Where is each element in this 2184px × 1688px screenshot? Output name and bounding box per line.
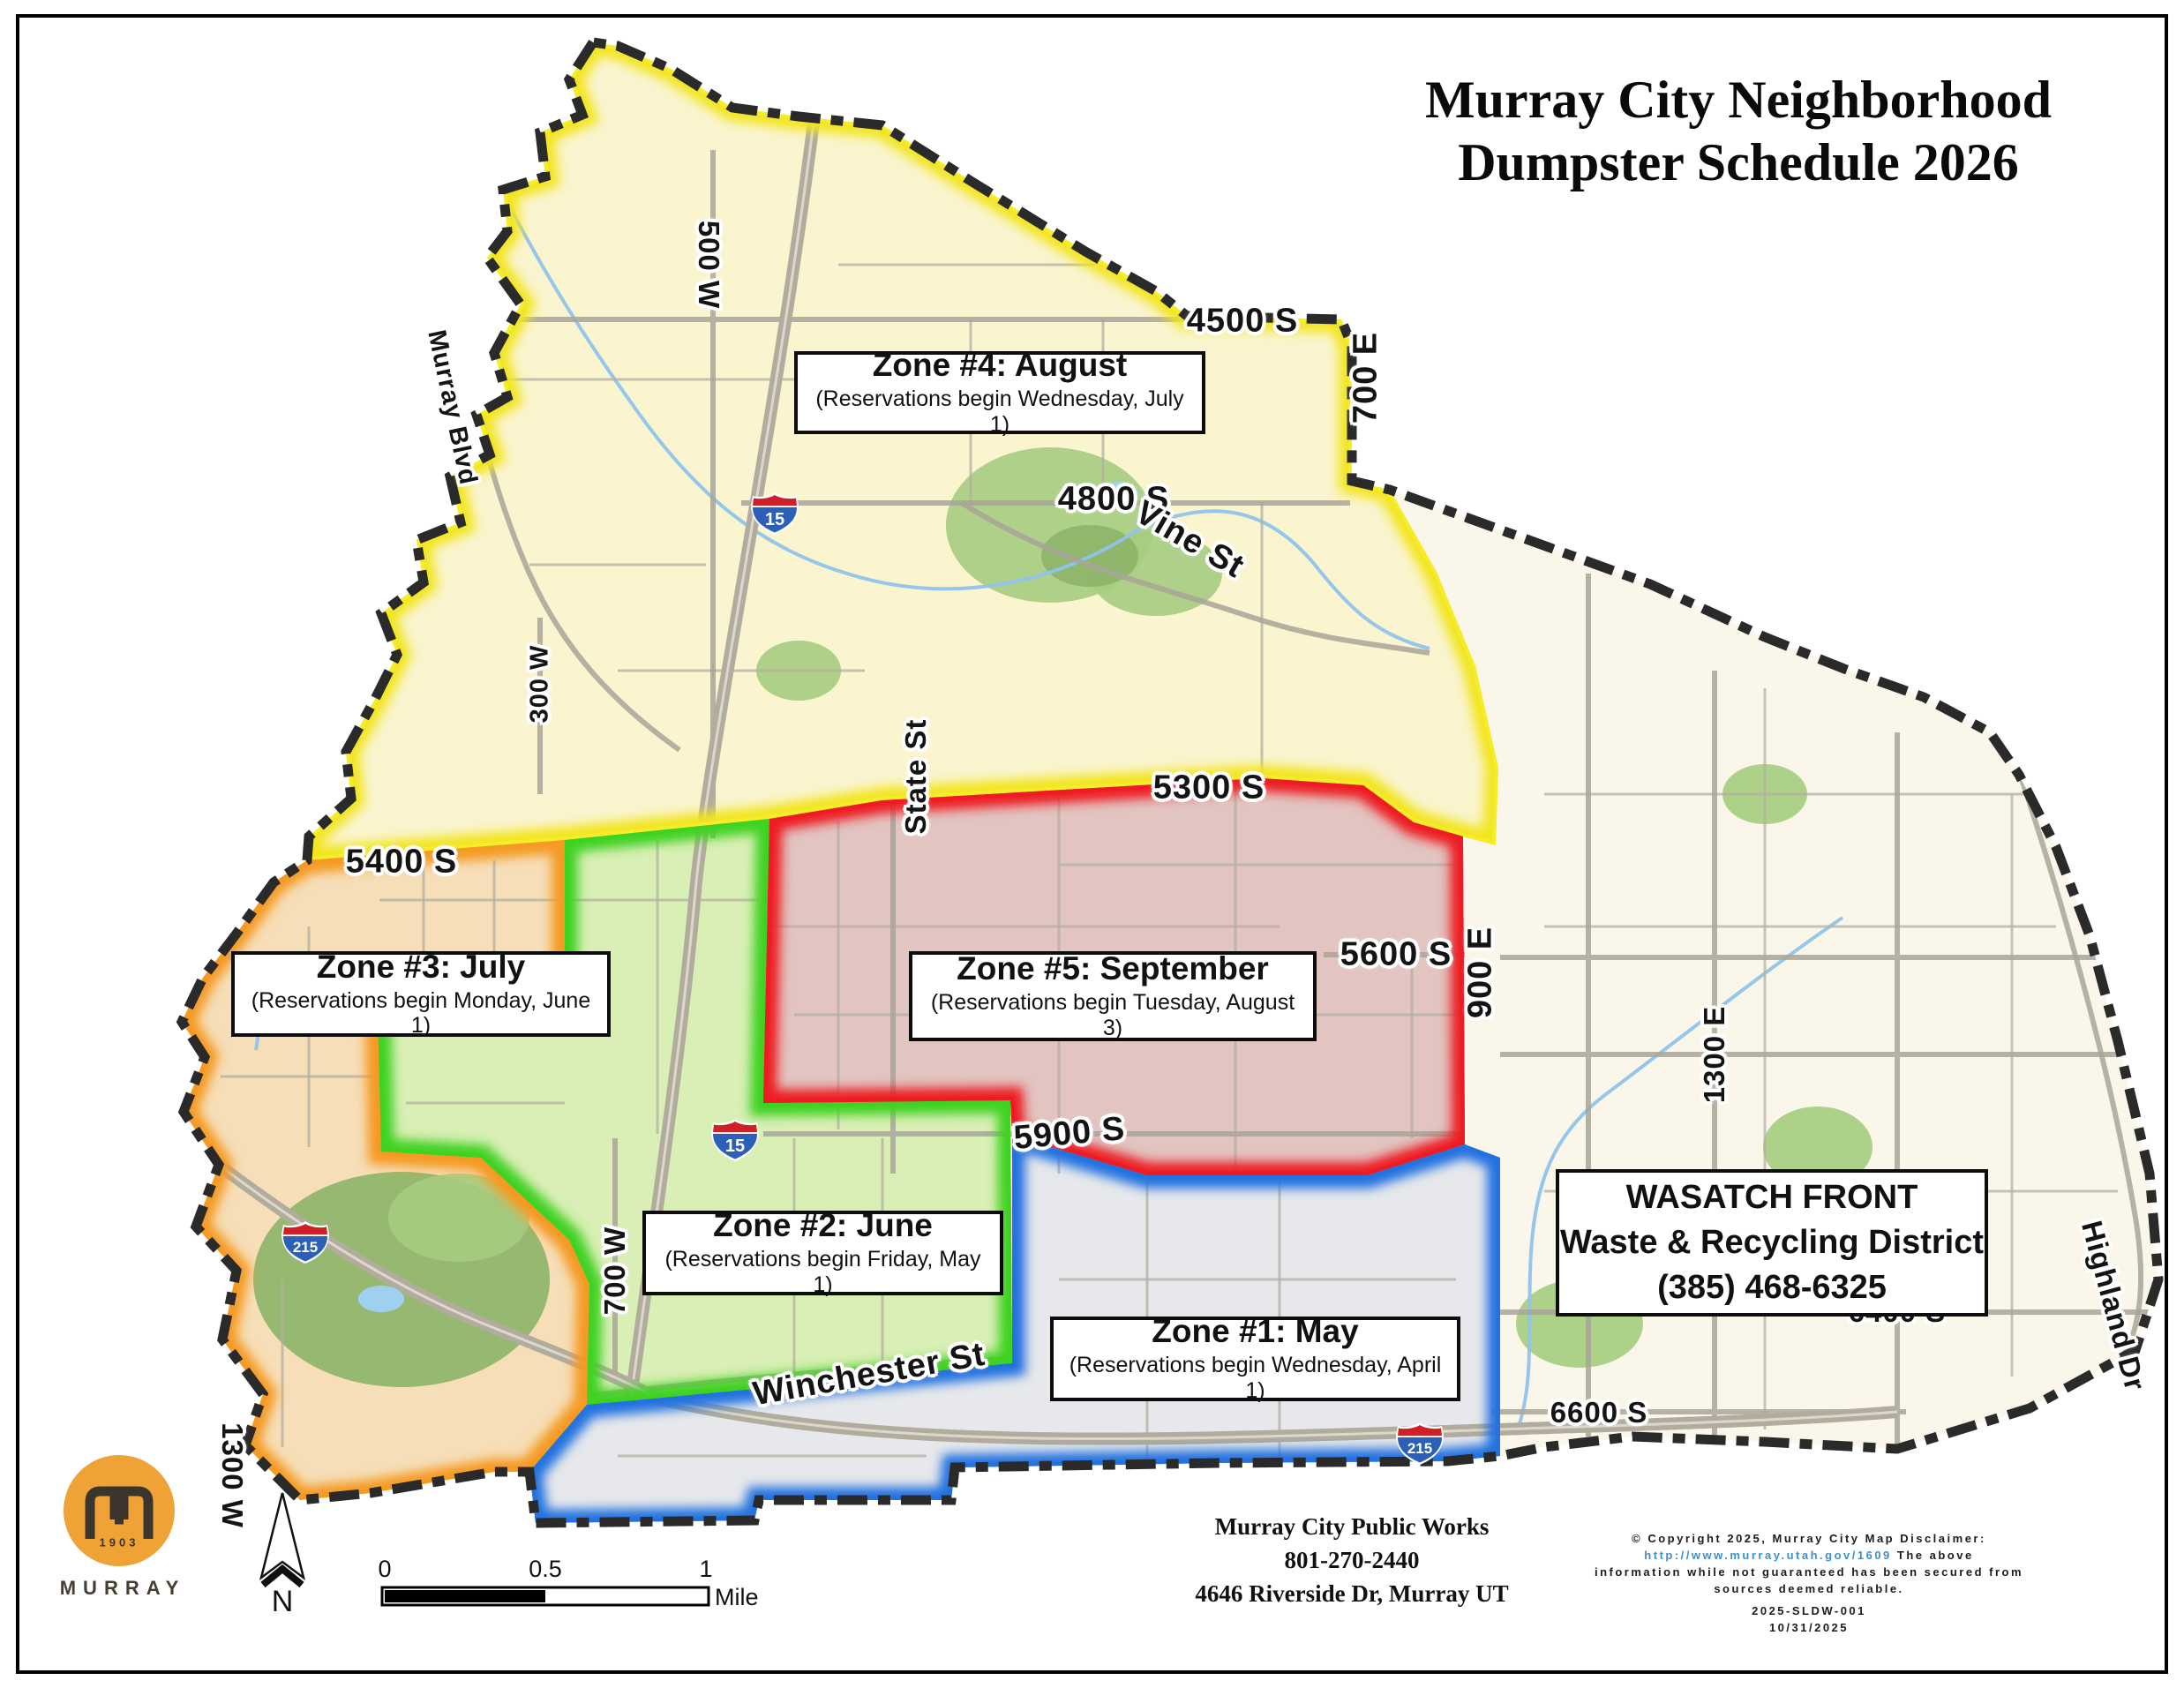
logo-name: MURRAY bbox=[60, 1577, 186, 1600]
disclaimer-url-link[interactable]: http://www.murray.utah.gov/1609 bbox=[1644, 1549, 1891, 1562]
i215-shield-number: 215 bbox=[293, 1239, 318, 1256]
zone1-subtitle: (Reservations begin Wednesday, April 1) bbox=[1062, 1353, 1448, 1404]
map-page: 15 15 215 215 bbox=[0, 0, 2184, 1688]
zone3-title: Zone #3: July bbox=[317, 949, 525, 986]
i15-shield-number: 15 bbox=[765, 510, 784, 529]
zone5-label-box: Zone #5: September (Reservations begin T… bbox=[909, 951, 1317, 1041]
zone4-title: Zone #4: August bbox=[873, 348, 1127, 384]
murray-logo-icon bbox=[64, 1455, 175, 1566]
zone2-label-box: Zone #2: June (Reservations begin Friday… bbox=[642, 1211, 1003, 1295]
disclaimer-line1: © Copyright 2025, Murray City Map Discla… bbox=[1588, 1530, 2030, 1547]
scale-tick-05: 0.5 bbox=[529, 1556, 562, 1583]
scale-unit: Mile bbox=[715, 1584, 759, 1611]
street-label-5400-s: 5400 S bbox=[346, 844, 457, 882]
disclaimer-code: 2025-SLDW-001 bbox=[1588, 1602, 2030, 1619]
street-label-700-e: 700 E bbox=[1347, 332, 1385, 424]
wasatch-front-info-box: WASATCH FRONT Waste & Recycling District… bbox=[1556, 1169, 1988, 1317]
logo-year: 1903 bbox=[100, 1536, 139, 1549]
disclaimer-line4: sources deemed reliable. bbox=[1588, 1580, 2030, 1597]
page-title: Murray City Neighborhood Dumpster Schedu… bbox=[1332, 69, 2144, 194]
north-arrow-icon bbox=[261, 1493, 304, 1585]
zone3-label-box: Zone #3: July (Reservations begin Monday… bbox=[231, 951, 611, 1037]
page-title-line1: Murray City Neighborhood bbox=[1332, 69, 2144, 131]
street-label-4500-s: 4500 S bbox=[1187, 303, 1298, 341]
i215-shield-number: 215 bbox=[1407, 1440, 1432, 1457]
zone1-label-box: Zone #1: May (Reservations begin Wednesd… bbox=[1050, 1317, 1460, 1401]
i15-shield-number: 15 bbox=[725, 1137, 745, 1156]
disclaimer-date: 10/31/2025 bbox=[1588, 1619, 2030, 1636]
zone4-subtitle: (Reservations begin Wednesday, July 1) bbox=[807, 386, 1193, 438]
wasatch-line3: (385) 468-6325 bbox=[1657, 1265, 1887, 1310]
public-works-line3: 4646 Riverside Dr, Murray UT bbox=[1131, 1578, 1572, 1611]
wasatch-line1: WASATCH FRONT bbox=[1626, 1175, 1918, 1220]
wasatch-line2: Waste & Recycling District bbox=[1560, 1220, 1984, 1265]
street-label-5600-s: 5600 S bbox=[1340, 936, 1452, 974]
scale-tick-0: 0 bbox=[378, 1556, 391, 1583]
disclaimer-line3: information while not guaranteed has bee… bbox=[1588, 1564, 2030, 1580]
street-label-700-w: 700 W bbox=[598, 1227, 632, 1315]
north-label: N bbox=[272, 1585, 294, 1619]
zone5-subtitle: (Reservations begin Tuesday, August 3) bbox=[921, 990, 1304, 1041]
zone2-subtitle: (Reservations begin Friday, May 1) bbox=[655, 1247, 991, 1298]
public-works-line1: Murray City Public Works bbox=[1131, 1511, 1572, 1544]
zone4-label-box: Zone #4: August (Reservations begin Wedn… bbox=[794, 351, 1205, 434]
zone1-title: Zone #1: May bbox=[1152, 1314, 1358, 1350]
scale-bar bbox=[382, 1587, 709, 1605]
disclaimer-line2: http://www.murray.utah.gov/1609 The abov… bbox=[1588, 1547, 2030, 1564]
street-label-500-w: 500 W bbox=[692, 221, 725, 309]
zone3-subtitle: (Reservations begin Monday, June 1) bbox=[244, 988, 598, 1039]
page-title-line2: Dumpster Schedule 2026 bbox=[1332, 131, 2144, 194]
street-label-1300-w: 1300 W bbox=[215, 1422, 249, 1528]
street-label-300-w: 300 W bbox=[526, 645, 555, 724]
street-label-state-st: State St bbox=[899, 719, 933, 835]
street-label-900-e: 900 E bbox=[1462, 927, 1500, 1018]
disclaimer-after-url: The above bbox=[1897, 1549, 1974, 1562]
scale-tick-1: 1 bbox=[699, 1556, 712, 1583]
street-label-6600-s: 6600 S bbox=[1550, 1396, 1648, 1429]
zone2-title: Zone #2: June bbox=[713, 1208, 933, 1244]
street-label-5300-s: 5300 S bbox=[1153, 769, 1265, 807]
map-disclaimer: © Copyright 2025, Murray City Map Discla… bbox=[1588, 1530, 2030, 1636]
street-label-1300-e: 1300 E bbox=[1698, 1006, 1731, 1104]
zone5-title: Zone #5: September bbox=[957, 951, 1269, 987]
public-works-line2: 801-270-2440 bbox=[1131, 1544, 1572, 1578]
public-works-contact: Murray City Public Works 801-270-2440 46… bbox=[1131, 1511, 1572, 1610]
murray-city-map: 15 15 215 215 bbox=[0, 0, 2184, 1688]
